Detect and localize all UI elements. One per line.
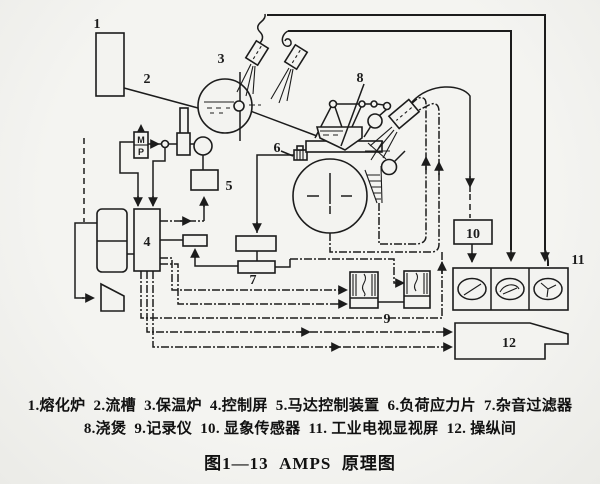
holding-furnace (198, 72, 261, 141)
recorder-a (350, 272, 378, 308)
label-10: 10 (466, 227, 480, 242)
legend-line-2: 8.浇煲 9.记录仪 10. 显象传感器 11. 工业电视显视屏 12. 操纵间 (0, 418, 600, 441)
legend-line-1: 1.熔化炉 2.流槽 3.保温炉 4.控制屏 5.马达控制装置 6.负荷应力片 … (0, 395, 600, 418)
tv-monitor-bank (453, 268, 568, 310)
label-9: 9 (384, 312, 391, 327)
junction-box (183, 235, 207, 246)
chute-wedge (101, 284, 124, 311)
label-5: 5 (226, 179, 233, 194)
gun-b-cable-hook (282, 31, 291, 46)
pour-line (245, 109, 317, 136)
label-2: 2 (144, 72, 151, 87)
noise-filter-group (236, 236, 276, 273)
standpipe (180, 108, 188, 134)
pressure-gauge (194, 137, 212, 155)
spray-gun-a (237, 14, 268, 96)
amps-schematic-diagram: 1 2 3 4 5 6 7 8 9 10 11 12 M P (0, 0, 600, 392)
label-8: 8 (357, 71, 364, 86)
melting-furnace-box (96, 33, 124, 96)
motor-control-box (191, 170, 218, 190)
gun-a-cable (258, 14, 265, 43)
label-12: 12 (502, 336, 516, 351)
bus-feedback-up (141, 252, 442, 318)
label-7: 7 (250, 273, 257, 288)
bus-to-recorder-top (290, 259, 403, 283)
valve-body (177, 133, 190, 155)
casting-wheel-group (293, 146, 405, 233)
label-4: 4 (144, 235, 151, 250)
spray-gun-b (271, 31, 307, 103)
pouring-ladle-group (306, 84, 391, 152)
label-3: 3 (218, 52, 225, 67)
recorder-b (404, 271, 430, 308)
motor-p-label: P (138, 147, 144, 157)
figure-legend: 1.熔化炉 2.流槽 3.保温炉 4.控制屏 5.马达控制装置 6.负荷应力片 … (0, 395, 600, 474)
loadcell-to-filter-line (257, 155, 294, 233)
motor-m-label: M (137, 135, 145, 145)
label-11: 11 (571, 253, 584, 268)
camera-video-line (412, 87, 470, 192)
scanned-figure-page: 1 2 3 4 5 6 7 8 9 10 11 12 M P 1.熔化炉 2.流… (0, 0, 600, 484)
label-1: 1 (94, 17, 101, 32)
tap-port (234, 101, 244, 111)
figure-caption: 图1—13 AMPS 原理图 (0, 449, 600, 474)
launder-line (124, 88, 198, 108)
pipe-joint (162, 141, 169, 148)
label-6: 6 (274, 141, 281, 156)
control-panel-group (97, 209, 207, 311)
load-cell (294, 146, 307, 160)
tv-camera-head (365, 100, 419, 160)
